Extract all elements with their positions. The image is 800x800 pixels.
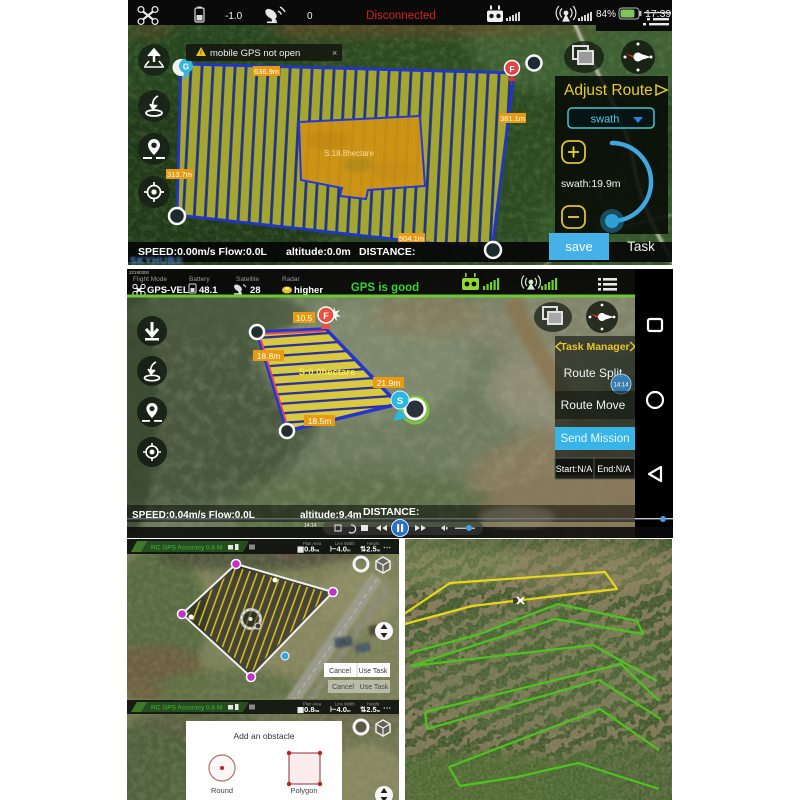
svg-text:altitude:0.0m: altitude:0.0m (286, 246, 351, 258)
svg-text:Cancel: Cancel (329, 668, 351, 675)
svg-text:S:18.8hectare: S:18.8hectare (324, 149, 374, 158)
svg-text:Use Task: Use Task (360, 684, 389, 691)
svg-text:Route Move: Route Move (561, 398, 626, 412)
svg-text:⋯: ⋯ (383, 543, 391, 552)
svg-text:swath:19.9m: swath:19.9m (561, 178, 621, 190)
svg-text:504.1m: 504.1m (399, 234, 424, 243)
svg-text:28: 28 (250, 285, 261, 296)
svg-text:48.1: 48.1 (199, 285, 218, 296)
svg-text:18.5m: 18.5m (308, 416, 332, 426)
svg-text:×: × (332, 48, 337, 58)
svg-text:GPS is good: GPS is good (351, 282, 419, 294)
svg-text:higher: higher (294, 285, 323, 296)
svg-text:84%: 84% (596, 9, 616, 20)
svg-text:F: F (509, 64, 514, 74)
svg-text:Adjust Route: Adjust Route (564, 82, 653, 99)
svg-text:Task Manager: Task Manager (560, 341, 629, 353)
svg-text:Flight Mode: Flight Mode (133, 276, 167, 283)
svg-text:10.5: 10.5 (296, 313, 313, 323)
svg-text:GPS-VEL: GPS-VEL (147, 285, 189, 296)
svg-text:313.7m: 313.7m (167, 170, 192, 179)
svg-text:End:N/A: End:N/A (597, 464, 631, 474)
svg-text:swath: swath (591, 114, 620, 126)
svg-text:Polygon: Polygon (290, 786, 317, 795)
svg-text:G: G (183, 63, 189, 72)
svg-text:Start:N/A: Start:N/A (556, 464, 593, 474)
svg-text:DISTANCE:: DISTANCE: (363, 506, 419, 518)
svg-text:mobile GPS not open: mobile GPS not open (210, 48, 300, 59)
svg-text:Send Mission: Send Mission (560, 433, 629, 445)
svg-text:-1.0: -1.0 (225, 11, 243, 22)
svg-text:altitude:9.4m: altitude:9.4m (300, 510, 362, 521)
svg-text:Disconnected: Disconnected (366, 10, 436, 22)
svg-text:14:14: 14:14 (613, 383, 629, 389)
svg-text:Battery: Battery (189, 276, 210, 283)
svg-text:S:0.0hectare: S:0.0hectare (299, 367, 356, 378)
svg-text:⋯: ⋯ (383, 704, 391, 713)
svg-text:Round: Round (211, 786, 233, 795)
svg-text:636.9m: 636.9m (254, 67, 279, 76)
svg-text:Satellite: Satellite (236, 276, 260, 283)
svg-text:18.8m: 18.8m (257, 351, 281, 361)
svg-text:S: S (397, 396, 403, 407)
svg-text:RC GPS Accuracy 0.8 M: RC GPS Accuracy 0.8 M (151, 705, 222, 712)
svg-text:SKYHUB®: SKYHUB® (130, 256, 183, 265)
svg-text:381.1m: 381.1m (500, 114, 525, 123)
svg-text:Use Task: Use Task (359, 668, 388, 675)
svg-text:Radar: Radar (282, 276, 301, 283)
svg-text:Task: Task (627, 239, 655, 254)
svg-text:Add an obstacle: Add an obstacle (234, 731, 295, 741)
svg-text:0: 0 (307, 11, 313, 22)
svg-text:save: save (565, 239, 592, 254)
svg-text:RC GPS Accuracy 0.8 M: RC GPS Accuracy 0.8 M (151, 545, 222, 552)
svg-text:SPEED:0.04m/s Flow:0.0L: SPEED:0.04m/s Flow:0.0L (132, 510, 255, 521)
svg-text:F: F (323, 311, 329, 321)
svg-text:22190300: 22190300 (129, 270, 150, 275)
svg-text:DISTANCE:: DISTANCE: (359, 246, 415, 258)
svg-text:Cancel: Cancel (332, 684, 354, 691)
svg-text:21.9m: 21.9m (377, 378, 401, 388)
